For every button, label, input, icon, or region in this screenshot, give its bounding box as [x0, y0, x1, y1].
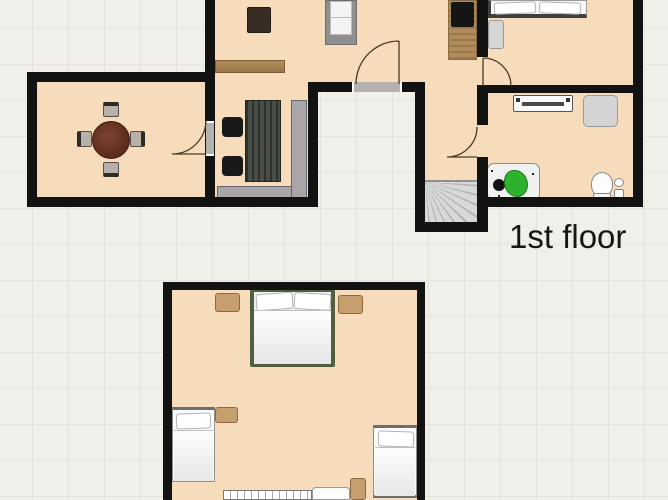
- wall-living-left: [205, 0, 215, 197]
- wall-bath-bottom: [477, 197, 643, 207]
- floor-plan-canvas: 1st floor: [0, 0, 668, 500]
- staircase-up: [223, 490, 312, 500]
- wall2-right: [417, 282, 425, 500]
- single-bed-left: [172, 407, 215, 482]
- wall-divider-c: [477, 157, 488, 232]
- green-stool: [504, 170, 528, 197]
- wall-stairwell-left: [415, 92, 425, 232]
- first-floor-label: 1st floor: [509, 220, 626, 253]
- duvet: [254, 310, 331, 364]
- tv-stand: [247, 7, 271, 33]
- attic-double-bed: [250, 289, 335, 367]
- wall-notch-top-a: [318, 82, 352, 92]
- sofa-cushion-divider: [330, 17, 352, 18]
- wall-dining-left: [27, 72, 37, 207]
- sofa-cushions: [330, 1, 352, 35]
- wall-dining-top: [27, 72, 215, 82]
- shower-cabinet: [583, 95, 618, 127]
- work-table: [245, 100, 281, 182]
- stair-landing: [312, 487, 350, 500]
- duvet: [174, 430, 213, 481]
- wall-right: [633, 0, 643, 207]
- round-dining-table: [92, 121, 130, 159]
- black-chair-a: [222, 117, 243, 137]
- nightstand-right: [338, 295, 363, 314]
- sink-small-top: [614, 178, 624, 187]
- wall-notch-left: [308, 82, 318, 207]
- entrance-door-threshold: [352, 82, 402, 92]
- nightstand-a: [215, 407, 238, 423]
- dining-chair-left: [77, 131, 92, 147]
- radiator-bracket-right: [566, 98, 570, 102]
- dining-door-threshold: [206, 121, 214, 156]
- washer-speck: [491, 170, 493, 172]
- bedside-cabinet: [488, 20, 504, 49]
- dining-chair-bottom: [103, 162, 119, 177]
- dining-chair-right: [130, 131, 145, 147]
- sofa: [325, 0, 357, 45]
- nightstand-b: [350, 478, 366, 500]
- sideboard: [215, 60, 285, 73]
- bed-pillow: [539, 1, 581, 14]
- staircase-down: [425, 180, 477, 222]
- corner-bench-right: [291, 100, 307, 200]
- wall-notch-top-b: [402, 82, 425, 92]
- single-bed-right: [373, 425, 417, 498]
- bed-pillow: [294, 292, 332, 311]
- nightstand-left: [215, 293, 240, 312]
- dining-chair-top: [103, 102, 119, 117]
- wall2-left: [163, 282, 172, 500]
- bed-pillow: [378, 430, 415, 447]
- radiator-core: [522, 102, 564, 106]
- double-bed-top: [488, 0, 587, 18]
- washing-machine: [487, 163, 540, 201]
- wall-bottom-left: [27, 197, 318, 207]
- wall2-top: [163, 282, 425, 290]
- wall-bed-bath: [477, 85, 643, 93]
- duvet: [375, 447, 415, 496]
- washer-speck: [532, 173, 534, 175]
- cooktop: [451, 2, 474, 27]
- black-chair-b: [222, 156, 243, 176]
- wall-divider-a: [477, 0, 488, 57]
- bed-pillow: [494, 1, 536, 14]
- bed-pillow: [176, 412, 212, 429]
- radiator: [513, 95, 573, 112]
- bed-pillow: [255, 292, 293, 312]
- radiator-bracket-left: [516, 98, 520, 102]
